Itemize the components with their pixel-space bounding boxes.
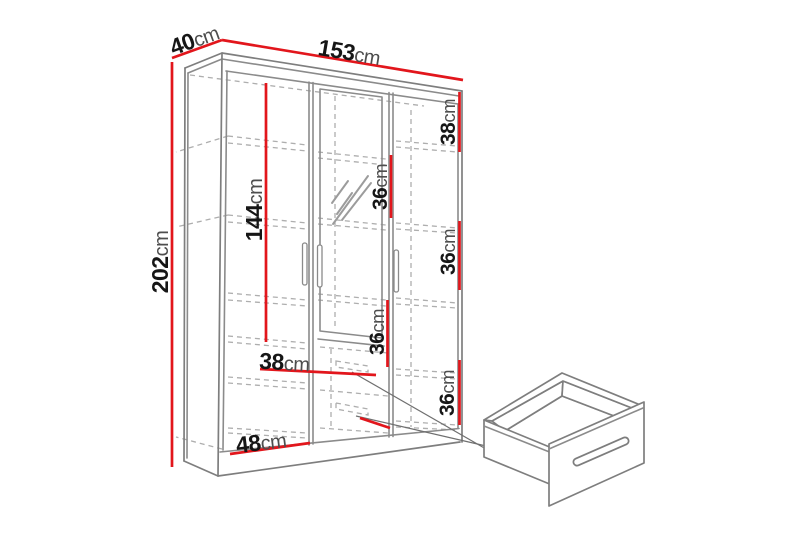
top-section-label: 38cm bbox=[437, 99, 460, 145]
middle-section-label: 36cm bbox=[437, 229, 460, 275]
hanging-space-label: 144cm bbox=[241, 179, 267, 242]
middle-door-handle bbox=[318, 245, 323, 287]
width-label: 153cm bbox=[316, 34, 382, 70]
right-door-handle bbox=[394, 250, 399, 292]
drawer-illustration bbox=[484, 373, 644, 506]
depth-label: 40cm bbox=[166, 19, 222, 61]
left-door-handle bbox=[303, 243, 308, 285]
drawer-section-label: 36cm bbox=[366, 309, 389, 355]
wardrobe bbox=[176, 53, 462, 476]
bottom-section-label: 36cm bbox=[436, 370, 459, 416]
upper-section-label: 36cm bbox=[369, 164, 392, 210]
furniture-dimension-diagram: 40cm 153cm 202cm 144cm 38cm 36cm 36cm 36… bbox=[0, 0, 800, 533]
left-back-edge bbox=[184, 68, 185, 461]
height-label: 202cm bbox=[147, 231, 173, 294]
